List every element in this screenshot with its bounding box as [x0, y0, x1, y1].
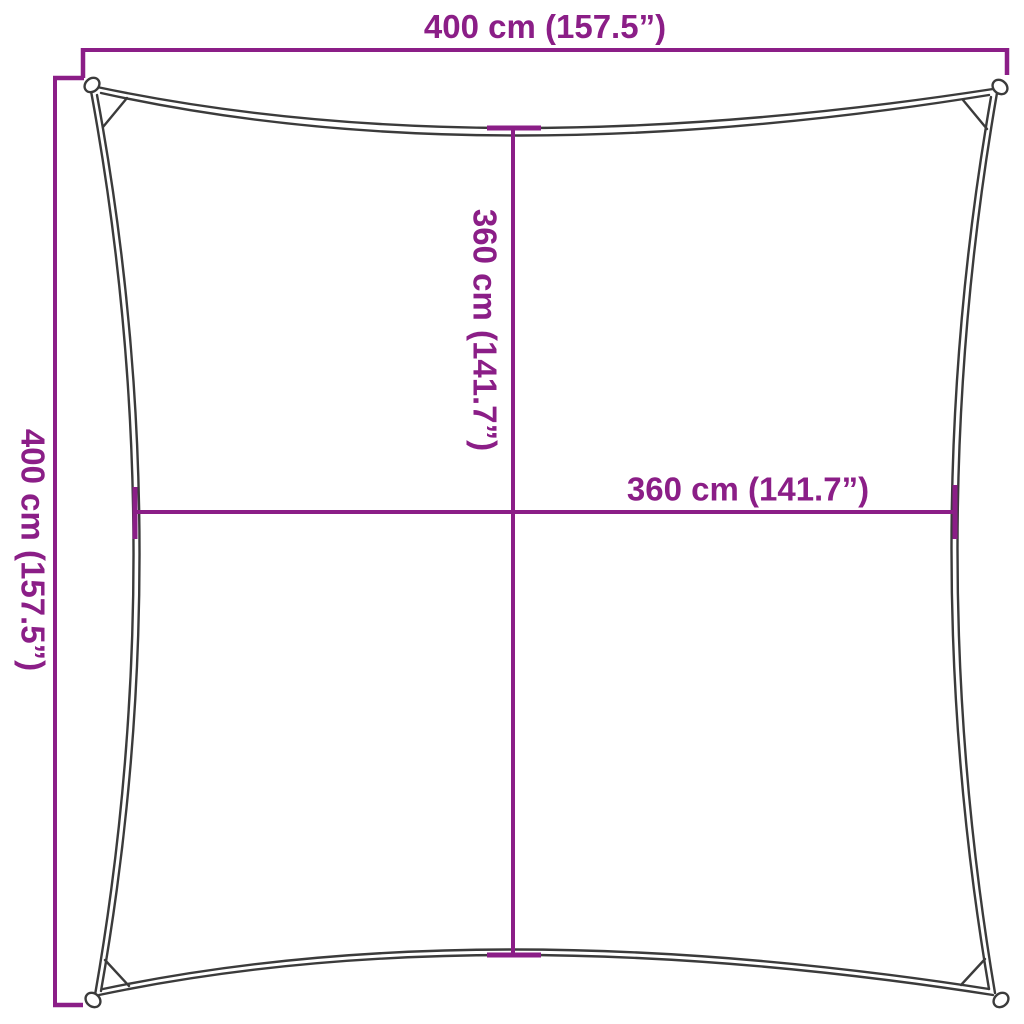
inner-height-dimension-label: 360 cm (141.7”): [469, 209, 502, 451]
sail-outline: [82, 75, 1012, 1010]
corner-patch-bottom-left: [105, 960, 129, 986]
inner-width-dimension-label: 360 cm (141.7”): [627, 473, 869, 506]
diagram-drawing: [0, 0, 1024, 1024]
corner-patch-top-left: [103, 98, 127, 127]
grommet-icon-top-right: [990, 77, 1011, 97]
outer-height-dimension-label: 400 cm (157.5”): [17, 429, 50, 671]
sail-right-edge-outer: [957, 93, 997, 993]
grommet-icon-bottom-left: [83, 990, 104, 1010]
sail-top-edge-outer: [97, 87, 993, 128]
sail-top-edge-inner: [101, 93, 989, 136]
outer-height-dimension-line: [53, 78, 84, 1005]
outer-width-dimension-label: 400 cm (157.5”): [83, 10, 1007, 43]
sail-bottom-edge-outer: [99, 955, 993, 995]
sail-left-edge-outer: [91, 91, 134, 995]
shade-sail-dimension-diagram: 400 cm (157.5”) 400 cm (157.5”) 360 cm (…: [0, 0, 1024, 1024]
dimension-lines: [53, 48, 1007, 1005]
corner-patch-top-right: [963, 100, 987, 129]
corner-patch-bottom-right: [961, 959, 985, 985]
outer-width-dimension-line: [83, 48, 1007, 78]
